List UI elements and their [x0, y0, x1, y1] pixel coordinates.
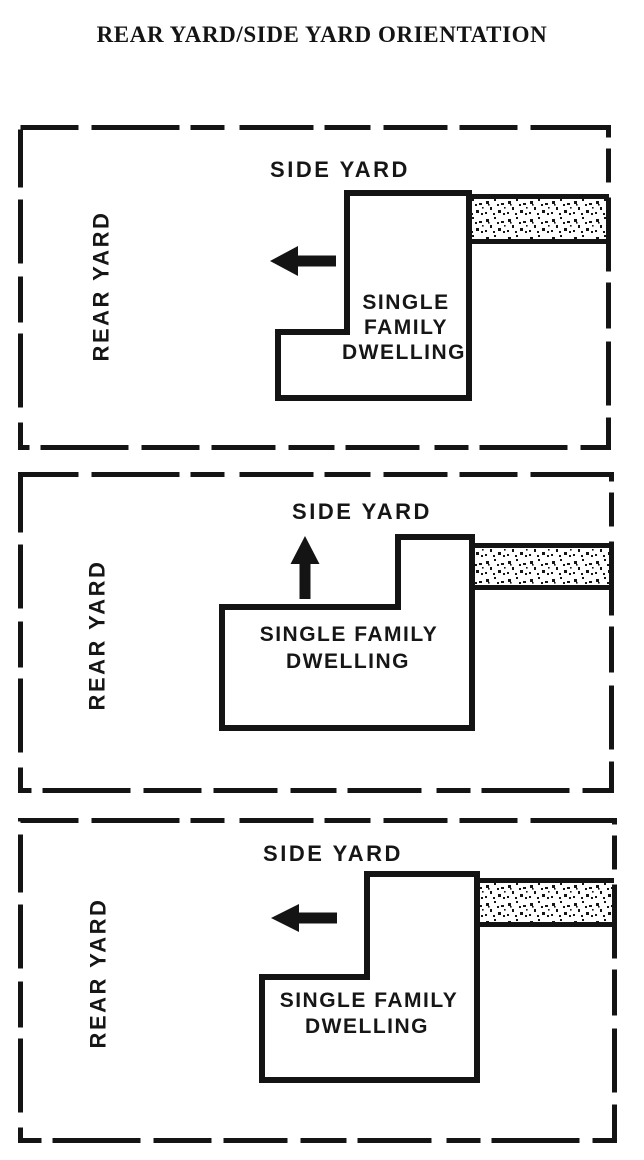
- rear-yard-label: REAR YARD: [85, 560, 110, 711]
- dwelling-footprint: [262, 874, 477, 1080]
- figure-page: REAR YARD/SIDE YARD ORIENTATION SIDE YAR…: [0, 0, 644, 1160]
- stipple-strip: [474, 548, 613, 585]
- arrow-left-icon: [271, 904, 337, 932]
- rear-yard-label: REAR YARD: [89, 211, 114, 362]
- panel-middle: SIDE YARD REAR YARD SINGLE FAMILY DWELLI…: [21, 475, 614, 791]
- side-yard-label: SIDE YARD: [263, 841, 403, 866]
- dwelling-label-line: SINGLE FAMILY: [280, 989, 459, 1012]
- rear-yard-label: REAR YARD: [86, 898, 111, 1049]
- side-yard-label: SIDE YARD: [270, 157, 410, 182]
- stipple-strip: [479, 883, 614, 922]
- dwelling-label-line: DWELLING: [342, 341, 466, 364]
- dwelling-label-line: SINGLE: [362, 291, 449, 314]
- side-yard-label: SIDE YARD: [292, 499, 432, 524]
- orientation-diagram: SIDE YARD REAR YARD SINGLE FAMILY DWELLI…: [0, 0, 644, 1160]
- dwelling-label-line: SINGLE FAMILY: [260, 623, 439, 646]
- arrow-left-icon: [270, 246, 336, 276]
- arrow-up-icon: [291, 536, 320, 599]
- dwelling-label-line: DWELLING: [286, 650, 410, 673]
- dwelling-label-line: FAMILY: [364, 316, 448, 339]
- dwelling-label-line: DWELLING: [305, 1015, 429, 1038]
- panel-bottom: SIDE YARD REAR YARD SINGLE FAMILY DWELLI…: [21, 821, 615, 1141]
- panel-top: SIDE YARD REAR YARD SINGLE FAMILY DWELLI…: [21, 128, 610, 448]
- stipple-strip: [471, 199, 609, 240]
